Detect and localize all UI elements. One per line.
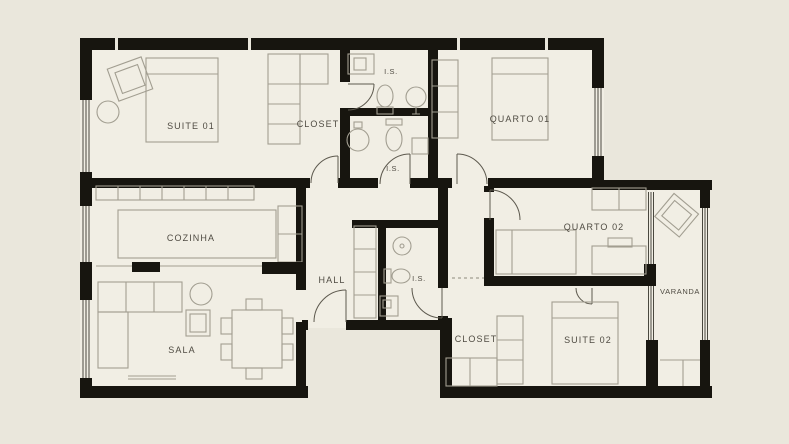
wall-quarto02-south bbox=[484, 276, 650, 286]
window-quarto01-right bbox=[592, 88, 604, 156]
wall-quarto02-west-b bbox=[484, 218, 494, 280]
floor-hall bbox=[302, 182, 452, 328]
room-label-cozinha: COZINHA bbox=[167, 233, 215, 243]
wall-notch bbox=[457, 38, 460, 50]
wall-quarto02-west-a bbox=[484, 186, 494, 192]
floor-plan-canvas: SUITE 01 CLOSET I.S. I.S. QUARTO 01 COZI… bbox=[0, 0, 789, 444]
wall-sala-bottom bbox=[80, 386, 308, 398]
wall-notch bbox=[115, 38, 118, 50]
floor-plan: SUITE 01 CLOSET I.S. I.S. QUARTO 01 COZI… bbox=[0, 0, 789, 444]
wall-varanda-low bbox=[646, 340, 658, 386]
wall-cozinha-sala-b bbox=[262, 262, 304, 274]
room-label-quarto-01: QUARTO 01 bbox=[490, 114, 551, 124]
wall-bath-east-b bbox=[438, 316, 448, 324]
wall-bath-west bbox=[378, 220, 386, 322]
window-suite01-left bbox=[80, 100, 92, 172]
room-label-suite-01: SUITE 01 bbox=[167, 121, 215, 131]
wall-bath-north bbox=[352, 220, 448, 228]
wall-wing-bottom bbox=[440, 386, 712, 398]
floor-areas bbox=[84, 42, 706, 392]
wall-indent-north-b bbox=[346, 320, 452, 330]
window-varanda-quarto02 bbox=[646, 192, 656, 264]
wall-is-west-b bbox=[340, 112, 350, 182]
room-label-is-3: I.S. bbox=[412, 274, 426, 283]
room-label-quarto-02: QUARTO 02 bbox=[564, 222, 625, 232]
room-label-sala: SALA bbox=[168, 345, 195, 355]
window-varanda-suite02 bbox=[646, 286, 656, 340]
wall-notch bbox=[248, 38, 251, 50]
window-sala-left bbox=[80, 300, 92, 378]
room-label-hall: HALL bbox=[319, 275, 346, 285]
wall-bath-east-a bbox=[438, 186, 448, 288]
floor-left-rooms bbox=[84, 182, 306, 392]
wall-cozinha-sala-a bbox=[132, 262, 160, 272]
room-label-is-2: I.S. bbox=[386, 164, 400, 173]
wall-is-east bbox=[428, 48, 438, 182]
wall-notch bbox=[545, 38, 548, 50]
window-varanda-right bbox=[700, 208, 710, 340]
window-cozinha-left bbox=[80, 206, 92, 262]
room-label-varanda: VARANDA bbox=[660, 287, 700, 296]
room-label-suite-02: SUITE 02 bbox=[564, 335, 612, 345]
room-label-closet-1: CLOSET bbox=[297, 119, 340, 129]
wall-mid-d bbox=[488, 178, 604, 188]
room-label-closet-2: CLOSET bbox=[455, 334, 498, 344]
room-label-is-1: I.S. bbox=[384, 67, 398, 76]
